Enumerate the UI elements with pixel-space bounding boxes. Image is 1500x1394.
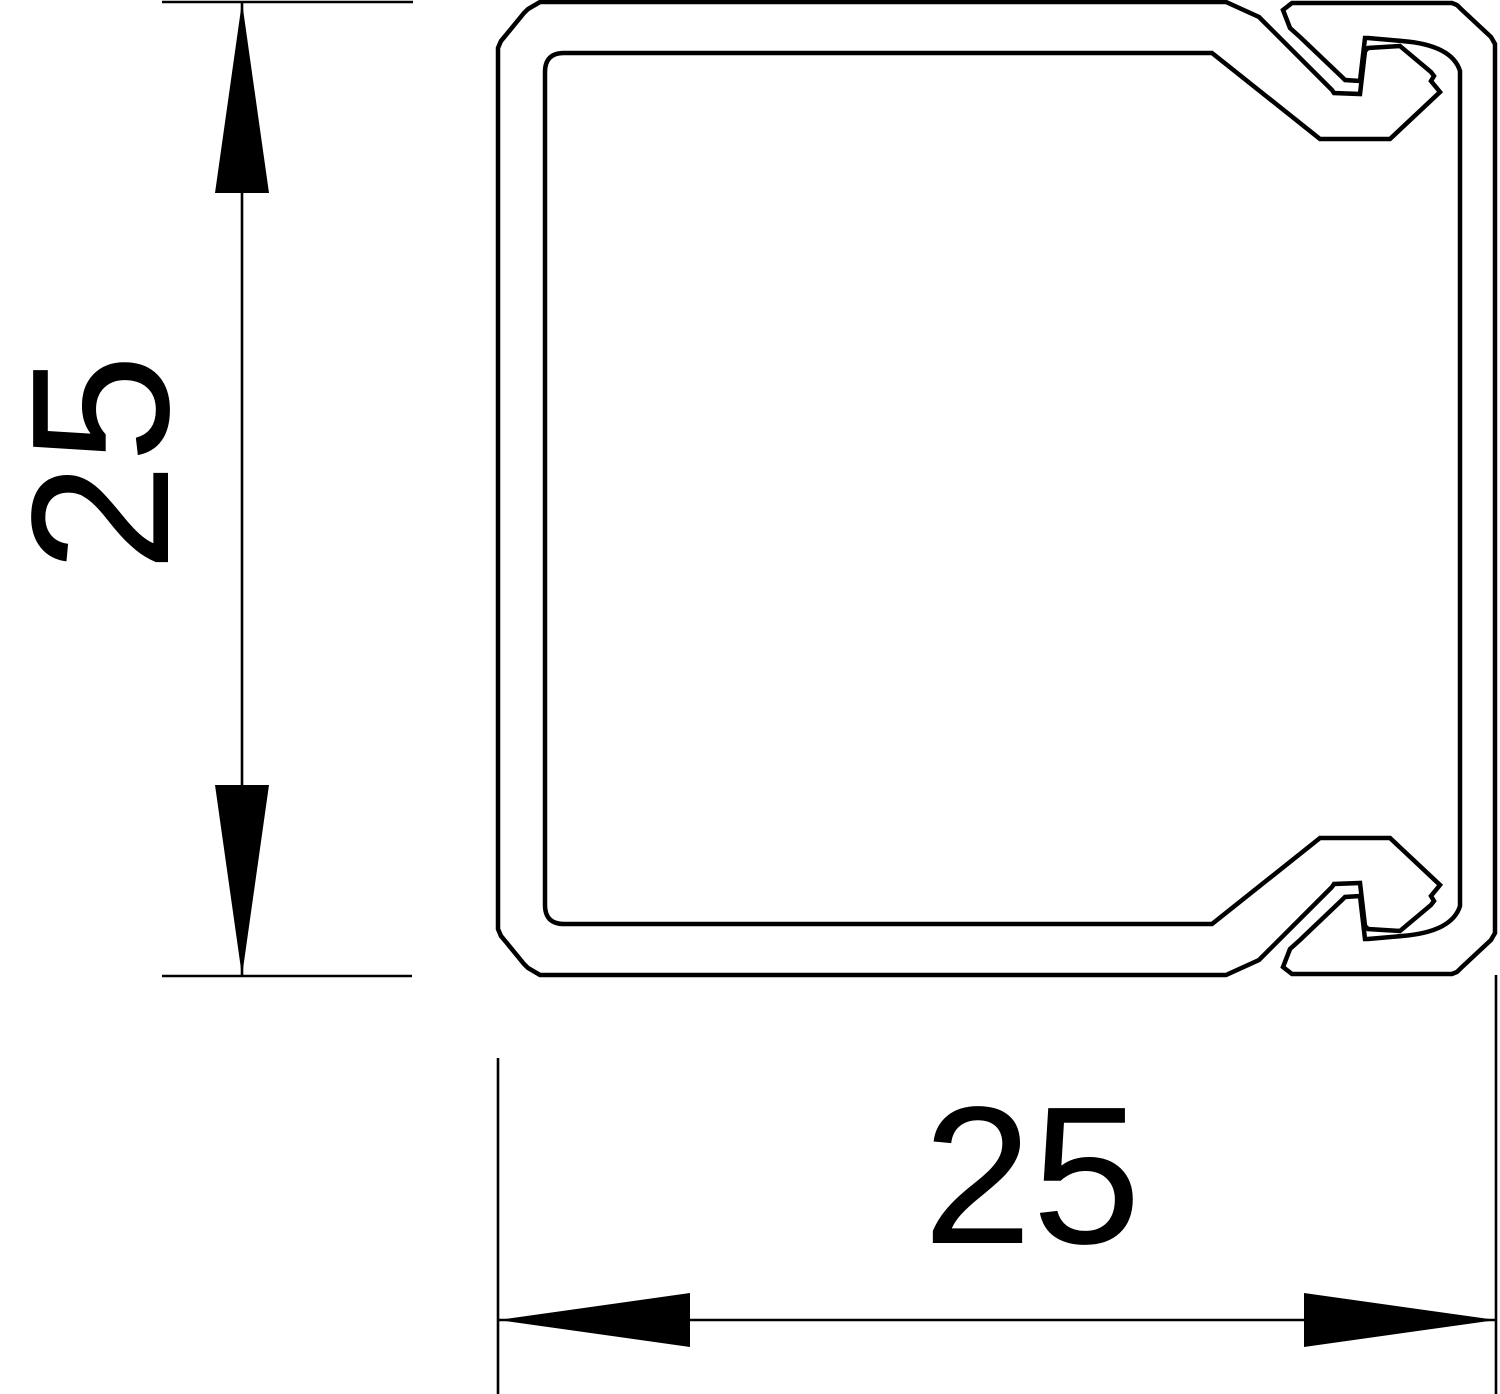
arrow-up-icon	[215, 2, 269, 193]
arrow-left-icon	[498, 1293, 690, 1347]
width-dimension-value: 25	[923, 1066, 1141, 1285]
width-dimension: 25	[498, 975, 1496, 1394]
height-dimension: 25	[0, 2, 413, 976]
arrow-down-icon	[215, 785, 269, 976]
technical-drawing-canvas: 25 25	[0, 0, 1500, 1394]
trunking-cross-section-drawing: 25 25	[0, 0, 1500, 1394]
duct-cover-outline	[1283, 3, 1495, 974]
height-dimension-value: 25	[0, 354, 210, 572]
arrow-right-icon	[1304, 1293, 1496, 1347]
duct-body-outline	[498, 2, 1440, 975]
